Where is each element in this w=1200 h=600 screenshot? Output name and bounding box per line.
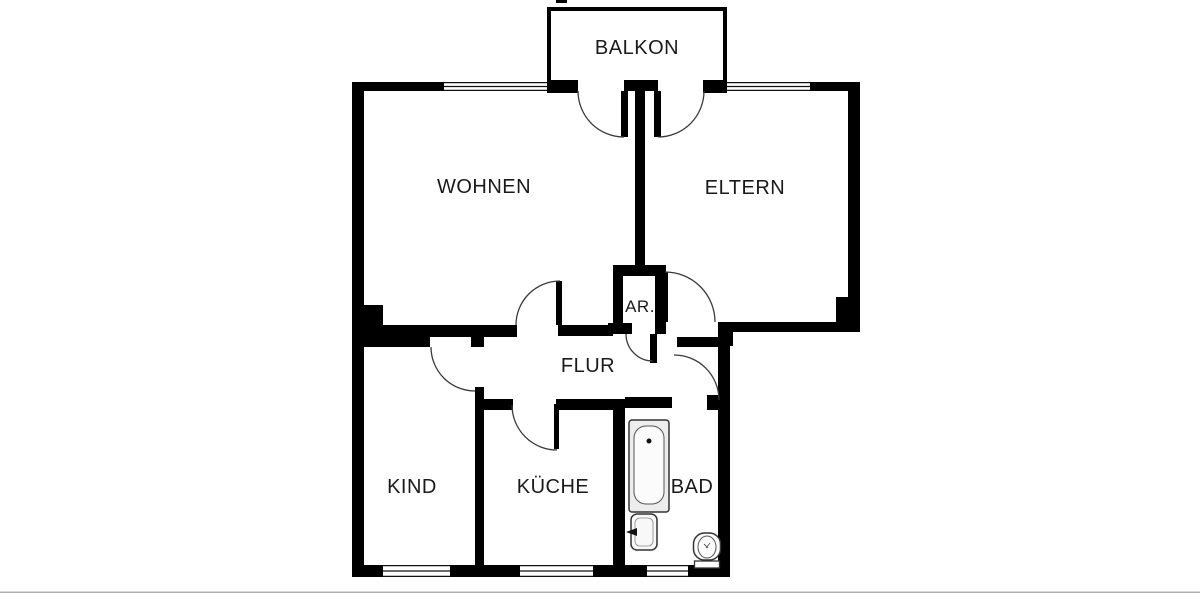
door-swing-arc	[578, 91, 624, 137]
wall-segment	[613, 399, 625, 577]
balcony-wall	[547, 7, 727, 11]
wall-segment	[556, 399, 618, 410]
wall-segment	[613, 265, 623, 325]
room-label-ar: AR.	[625, 297, 655, 316]
room-label-bad: BAD	[671, 476, 714, 498]
wall-segment	[547, 80, 578, 93]
door-arcs-layer	[431, 91, 719, 450]
floorplan-canvas: BALKON WOHNEN ELTERN AR. FLUR KIND KÜCHE…	[0, 0, 1200, 600]
wall-segment	[625, 397, 672, 408]
wall-segment	[450, 565, 520, 577]
room-label-flur: FLUR	[561, 355, 615, 377]
room-label-kind: KIND	[387, 476, 437, 498]
wall-segment	[558, 325, 613, 336]
wall-segment	[718, 322, 860, 332]
wall-segment	[383, 337, 430, 347]
wall-segment	[471, 337, 484, 347]
door-swing-arc	[431, 347, 475, 391]
wall-segment	[484, 399, 513, 410]
door-leaf	[621, 91, 628, 137]
door-leaf	[662, 272, 668, 322]
door-swing-arc	[516, 281, 560, 325]
bathtub-inner	[634, 426, 664, 504]
door-swing-arc	[665, 272, 715, 322]
room-label-eltern: ELTERN	[705, 177, 785, 199]
door-leaf	[554, 404, 559, 449]
wall-segment	[624, 80, 658, 91]
image-bottom-border	[0, 592, 1200, 594]
balcony-wall	[547, 7, 551, 82]
room-label-kueche: KÜCHE	[517, 476, 590, 498]
door-leaf	[556, 281, 562, 325]
door-swing-arc	[658, 91, 704, 137]
floorplan-svg: BALKON WOHNEN ELTERN AR. FLUR KIND KÜCHE…	[0, 0, 1200, 600]
door-swing-arc	[512, 405, 557, 450]
wall-segment	[352, 565, 383, 577]
wall-segment	[635, 91, 645, 265]
room-label-balkon: BALKON	[595, 37, 679, 59]
bathtub-drain	[647, 439, 652, 444]
door-leaf	[654, 91, 661, 137]
wall-segment	[718, 322, 733, 346]
balcony-wall	[723, 7, 727, 82]
wall-segment	[556, 0, 567, 3]
room-label-wohnen: WOHNEN	[437, 176, 531, 198]
wall-segment	[707, 395, 718, 410]
wall-segment	[364, 325, 517, 337]
door-swing-arc	[674, 355, 719, 400]
wall-segment	[352, 82, 444, 91]
door-leaf	[650, 334, 657, 363]
wall-segment	[677, 337, 718, 347]
wall-segment	[848, 82, 860, 331]
wall-segment	[475, 387, 484, 577]
door-swing-arc	[626, 334, 653, 361]
toilet-tank	[695, 561, 720, 568]
